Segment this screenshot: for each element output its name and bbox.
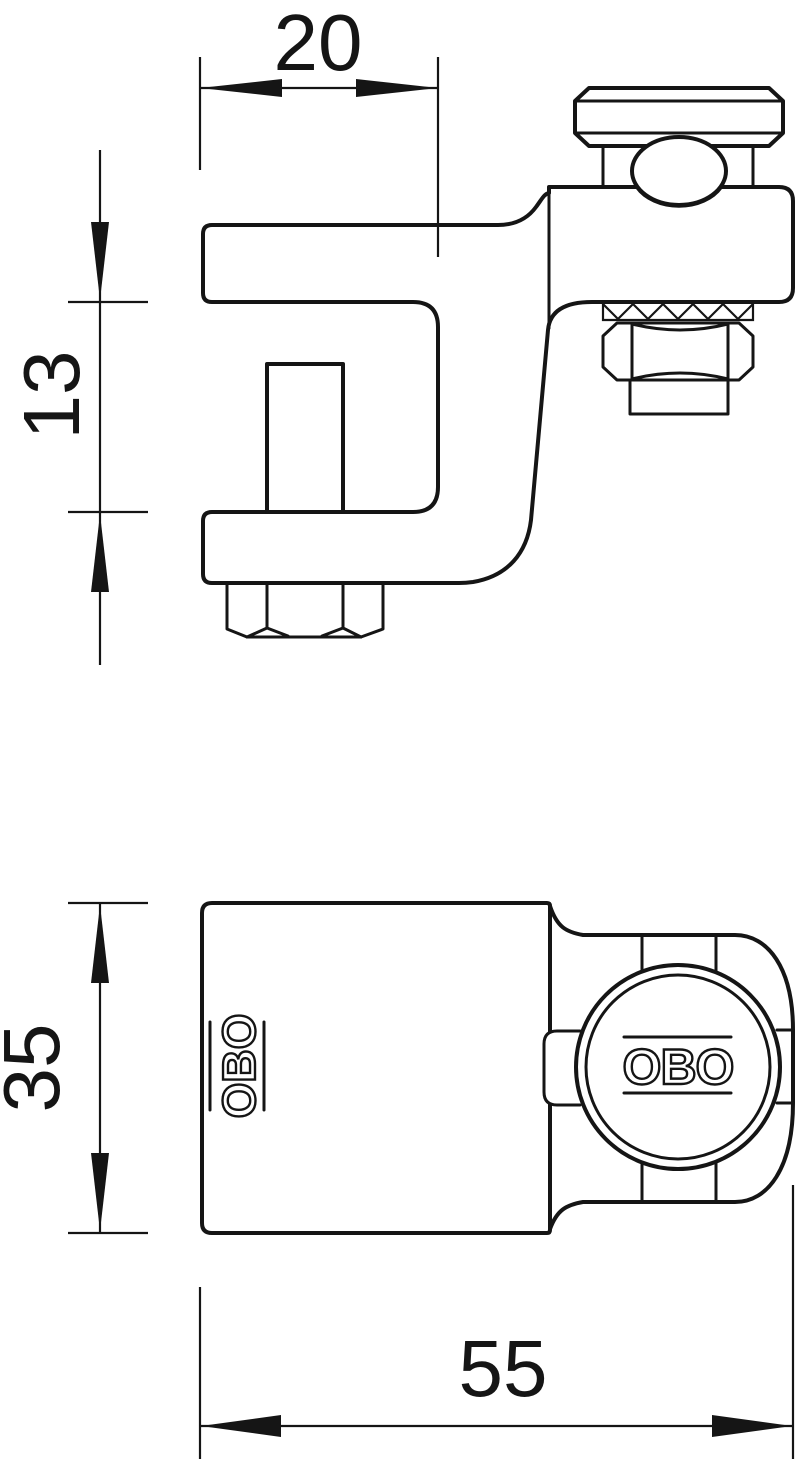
logo-text: OBO	[213, 1014, 265, 1119]
dimension-label: 13	[7, 351, 96, 440]
dimension-label: 55	[459, 1324, 548, 1413]
serrated-washer	[603, 303, 753, 320]
arrowhead-down	[91, 222, 109, 300]
dimension-13: 13	[7, 150, 148, 665]
arrowhead-up	[91, 905, 109, 983]
technical-drawing: 20 13 OBO	[0, 0, 796, 1459]
dimension-35: 35	[0, 903, 148, 1233]
arrowhead-up	[91, 514, 109, 592]
extension-line	[200, 1185, 793, 1459]
hex-bolt-head	[227, 583, 383, 637]
dimension-20: 20	[200, 0, 438, 257]
dimension-label: 35	[0, 1024, 76, 1113]
dimension-55: 55	[200, 1185, 793, 1459]
side-view: 20 13	[7, 0, 793, 665]
arrowhead-down	[91, 1153, 109, 1231]
dimension-label: 20	[274, 0, 363, 87]
square-shank	[630, 380, 728, 414]
tick-marks	[68, 903, 148, 1233]
logo-text: OBO	[623, 1039, 734, 1095]
arrowhead-left	[201, 1415, 281, 1437]
arrowhead-left	[200, 79, 282, 97]
obo-logo-body: OBO	[210, 1014, 265, 1119]
obo-logo-knob: OBO	[623, 1037, 734, 1095]
arrowhead-right	[712, 1415, 792, 1437]
clamp-jaw-tab	[267, 364, 343, 512]
top-view: OBO OBO 35	[0, 903, 793, 1459]
arrowhead-right	[356, 79, 438, 97]
hex-nut	[603, 323, 753, 380]
ball-joint	[632, 137, 726, 205]
clamp-body-outline	[203, 187, 793, 583]
drawing-canvas: 20 13 OBO	[0, 0, 796, 1459]
